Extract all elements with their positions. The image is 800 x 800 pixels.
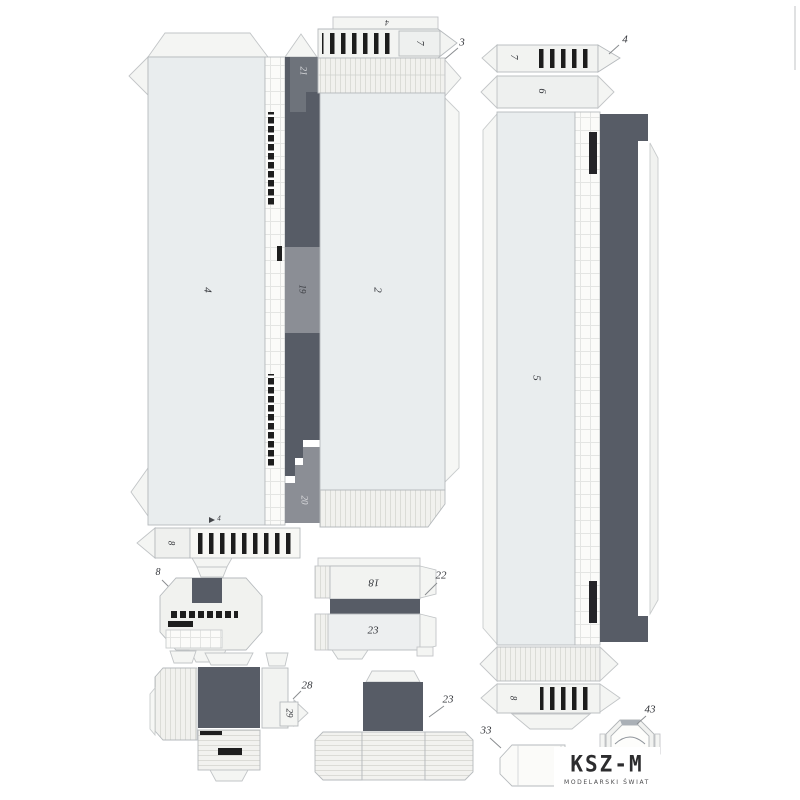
roofband-left-tri (480, 647, 497, 681)
part6-label: 6 (536, 89, 546, 94)
part5-door-top (589, 132, 597, 174)
p23-small-box (417, 647, 433, 656)
part8-right-label: 8 (509, 696, 518, 701)
p23b-top-tab (366, 671, 420, 682)
part-2-group (318, 58, 461, 527)
part7r-stripes (536, 49, 590, 68)
part23-bottom-label: 23 (443, 695, 454, 706)
part5-grid-strip (575, 112, 600, 645)
part7-right-label: 7 (508, 55, 518, 60)
part29-label: 29 (285, 709, 294, 718)
roofband-right-tri (600, 647, 618, 681)
part28-dark-square (198, 667, 260, 728)
part5-left-tab (483, 114, 497, 644)
part28-top-tab-right (266, 653, 288, 666)
p18-left-striped-tab (315, 566, 330, 598)
model-sheet: 4 19 21 20 2 3 7 4 8 4 4 7 6 5 8 43 8 28… (0, 0, 800, 800)
part-4-group (129, 33, 285, 525)
part5-right-tab (650, 143, 658, 614)
part6-right-tri (598, 76, 614, 108)
part5-dark-band (600, 114, 648, 642)
p23b-panel-left (315, 732, 362, 780)
center-column-group (285, 34, 320, 523)
part2-roof-band-top (318, 58, 445, 93)
part6-left-tri (481, 76, 497, 108)
logo-subtitle: MODELARSKI ŚWIAT (564, 779, 650, 786)
publisher-logo: KSZ-M MODELARSKI ŚWIAT (554, 747, 660, 791)
ladder-detail-mid (277, 246, 282, 261)
part8-strip-label: 8 (167, 541, 176, 546)
part7-top-label: 7 (414, 41, 424, 46)
part6-band (497, 76, 598, 108)
part3-stripes (322, 33, 396, 54)
part23-mid-label: 23 (368, 626, 379, 637)
part5-roof-band (497, 647, 600, 681)
p18-top-tab (318, 558, 420, 566)
part2-right-tab-top (445, 60, 461, 96)
p23b-panel-right (425, 732, 473, 780)
part28-leader (293, 691, 301, 699)
part8r-right-tri (600, 684, 620, 712)
tab4-right-leader (609, 45, 619, 54)
part43-label: 43 (645, 705, 656, 716)
part19-label: 19 (298, 285, 307, 294)
p18-dark-band (330, 599, 420, 614)
tab4-right-label: 4 (622, 35, 628, 46)
p23b-dark-square (363, 682, 423, 731)
part28-left-flap (155, 668, 197, 740)
part23b-leader (429, 706, 444, 717)
part5-label: 5 (531, 375, 542, 381)
part7r-right-arrow (598, 45, 620, 72)
part4-corner-tab-top (129, 57, 148, 95)
sheet-drawing (0, 0, 800, 800)
part28-outer-left-tab (150, 688, 155, 735)
part2-right-tab-long (445, 98, 459, 482)
part18-label: 18 (369, 577, 380, 588)
part7r-left-tri (482, 45, 497, 72)
part43-top-shade (620, 720, 640, 725)
part-8-small-group (160, 567, 262, 662)
part8-small-label: 8 (156, 568, 161, 578)
tab4-top-label: 4 (385, 18, 389, 26)
part28-bottom-tab (210, 770, 248, 781)
part5-door-bottom (589, 581, 597, 623)
part8r-stripes (540, 687, 592, 710)
part2-label: 2 (372, 287, 383, 293)
part8s-top-tab (197, 567, 227, 577)
center-peak-tab (285, 34, 317, 57)
p23b-panel-center (362, 732, 425, 780)
part-23-bottom-group (315, 671, 473, 780)
part2-roof-band-bottom (320, 490, 445, 527)
p23-bottom-tab (332, 650, 368, 659)
part21-label: 21 (299, 67, 308, 76)
part28-top-tab-left (170, 651, 196, 663)
ladder-detail-lower (268, 374, 274, 468)
part8s-bar-long (168, 611, 238, 618)
part20-label: 20 (300, 496, 309, 505)
strip8-stripes (195, 533, 295, 554)
part8s-dark-square (192, 578, 222, 603)
logo-title: KSZ-M (570, 751, 643, 776)
tab4-strip-label: 4 (217, 516, 221, 523)
part33-leader (490, 738, 501, 748)
part4-corner-tab-bottom (131, 468, 148, 516)
part8r-left-tri (481, 684, 497, 712)
ladder-detail-upper (268, 112, 274, 205)
p18-right-flap (420, 566, 436, 598)
part22-label: 22 (436, 571, 447, 582)
part8s-grid-panel (166, 630, 222, 648)
part-18-22-group (315, 558, 437, 659)
part8s-bar-short (168, 621, 193, 627)
p23-right-flap (420, 614, 436, 650)
part-5-group (480, 45, 658, 729)
part33-label: 33 (481, 726, 492, 737)
part4-label: 4 (202, 287, 213, 293)
strip8-left-point (137, 528, 155, 558)
part3-label: 3 (459, 38, 465, 49)
part5-bottom-tab (512, 714, 590, 729)
part4-top-tab (148, 33, 268, 57)
part28-label: 28 (302, 681, 313, 692)
p23-left-striped-tab (315, 614, 328, 650)
part28-bar-top (200, 731, 222, 735)
part28-top-tab-center (205, 653, 253, 665)
part28-bar-mid (218, 748, 242, 755)
